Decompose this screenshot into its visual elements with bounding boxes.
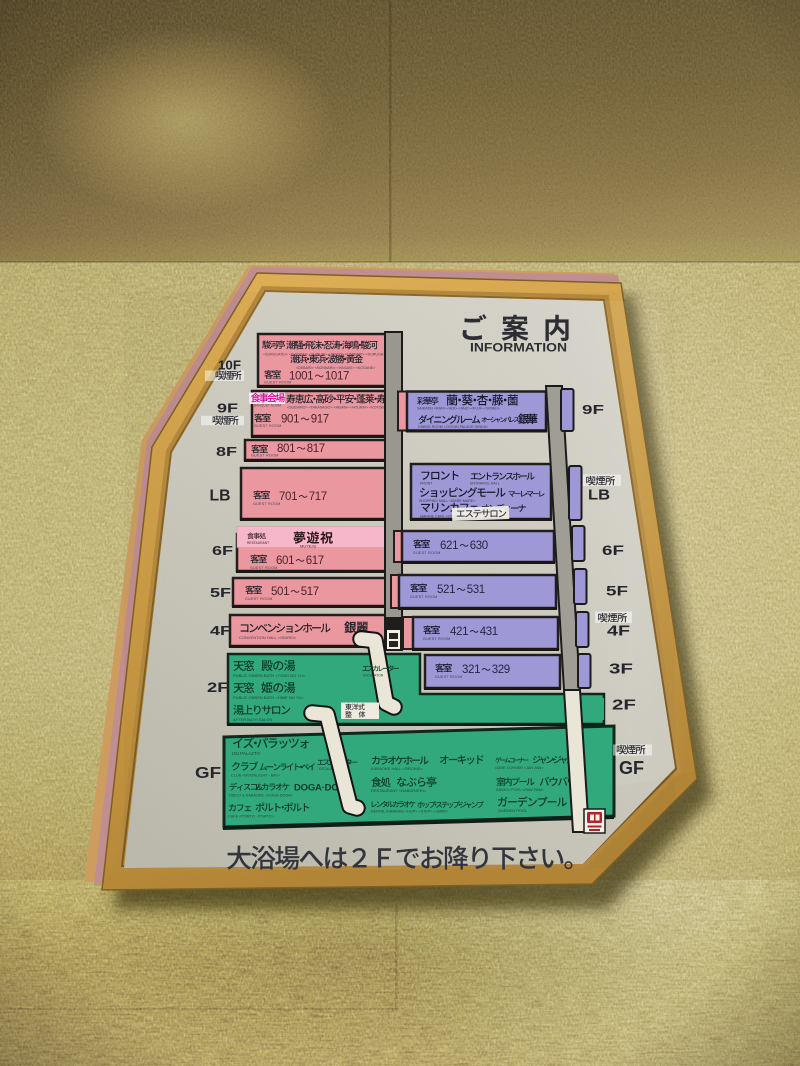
svg-text:421: 421 [450, 626, 468, 638]
svg-text:501: 501 [271, 586, 289, 598]
svg-text:1017: 1017 [325, 371, 349, 383]
svg-text:<SURUGATEI> <SHIOSAI>·<SHIBUKI: <SURUGATEI> <SHIOSAI>·<SHIBUKI>·<NINTO>·… [263, 353, 385, 357]
svg-text:GUEST ROOM: GUEST ROOM [410, 595, 438, 599]
svg-text:AFTER BATH SALON: AFTER BATH SALON [233, 717, 272, 722]
svg-text:PUBLIC ONSEN BATH <HIME NO YU>: PUBLIC ONSEN BATH <HIME NO YU> [233, 695, 304, 700]
svg-text:RESTAURANT <NABURATEI>: RESTAURANT <NABURATEI> [371, 788, 427, 793]
svg-text:IZU PALAZTO: IZU PALAZTO [232, 751, 260, 756]
svg-text:4F: 4F [607, 624, 630, 640]
svg-text:517: 517 [301, 586, 319, 598]
svg-text:GF: GF [619, 757, 644, 778]
svg-text:FRONT: FRONT [420, 482, 433, 486]
svg-text:INDOO< POOL <PAW PAW>: INDOO< POOL <PAW PAW> [496, 788, 544, 792]
svg-text:BANQUET ROOM: BANQUET ROOM [254, 403, 281, 407]
svg-text:GAME CORNER <JAN·JAN>: GAME CORNER <JAN·JAN> [495, 766, 543, 770]
svg-text:601: 601 [276, 555, 294, 567]
svg-text:GUEST ROOM: GUEST ROOM [413, 551, 441, 555]
svg-text:KARAOKE HALL <ORCHID>: KARAOKE HALL <ORCHID> [371, 766, 424, 771]
svg-text:GUEST ROOM: GUEST ROOM [253, 502, 281, 506]
svg-text:LB: LB [210, 488, 231, 505]
svg-text:<DEBARI>·<NONNARI>·<HAGAKI>·<K: <DEBARI>·<NONNARI>·<HAGAKI>·<KOGANE> [296, 366, 375, 370]
svg-text:630: 630 [470, 540, 488, 552]
svg-text:GUEST ROOM: GUEST ROOM [423, 637, 451, 641]
svg-text:GARDEN POOL: GARDEN POOL [498, 808, 528, 813]
svg-text:321: 321 [462, 664, 480, 676]
svg-text:531: 531 [467, 584, 485, 596]
svg-text:917: 917 [311, 414, 329, 426]
svg-text:9F: 9F [582, 402, 604, 417]
svg-text:801: 801 [277, 443, 295, 455]
svg-text:SHOPPING MALL <MARE·MARE>: SHOPPING MALL <MARE·MARE> [419, 499, 475, 503]
svg-text:GUEST ROOM: GUEST ROOM [250, 566, 278, 570]
svg-text:SAIKATEI <RAN>·<AOI>·<ANZ>·<FU: SAIKATEI <RAN>·<AOI>·<ANZ>·<FUJI>·<SOMEI… [417, 407, 500, 411]
svg-text:5F: 5F [606, 583, 629, 599]
svg-text:CAFE <PORTO · PORTO>: CAFE <PORTO · PORTO> [228, 815, 274, 819]
svg-text:DINING ROOM <OCEAN PALACE GING: DINING ROOM <OCEAN PALACE GINGA> [418, 425, 488, 429]
svg-text:701: 701 [279, 491, 297, 503]
svg-text:GUEST ROOM: GUEST ROOM [245, 597, 273, 601]
svg-text:521: 521 [437, 584, 455, 596]
svg-text:4F: 4F [210, 623, 231, 638]
svg-text:GUEST ROOM: GUEST ROOM [251, 454, 279, 458]
svg-text:6F: 6F [602, 542, 625, 558]
svg-text:CONVENTION HALL <GINREI>: CONVENTION HALL <GINREI> [239, 635, 297, 640]
svg-text:5F: 5F [210, 585, 231, 600]
svg-text:6F: 6F [212, 543, 233, 558]
svg-text:621: 621 [440, 540, 458, 552]
svg-text:GUEST ROOM: GUEST ROOM [435, 675, 463, 679]
svg-text:717: 717 [309, 491, 327, 503]
svg-text:3F: 3F [609, 661, 633, 678]
svg-text:CLUB <MOONLIGHT · BAY>: CLUB <MOONLIGHT · BAY> [231, 774, 281, 778]
svg-text:2F: 2F [612, 697, 636, 714]
svg-text:INFORMATION: INFORMATION [470, 343, 567, 355]
svg-text:MUYEJU: MUYEJU [300, 544, 317, 549]
svg-text:GUEST ROOM: GUEST ROOM [254, 424, 282, 428]
svg-text:RENTAL KARAOKE <HOP>·<STEP>·<J: RENTAL KARAOKE <HOP>·<STEP>·<JUMP> [371, 809, 448, 813]
svg-text:8F: 8F [216, 445, 238, 459]
svg-text:329: 329 [492, 664, 510, 676]
svg-text:GF: GF [195, 765, 221, 782]
svg-text:1001: 1001 [289, 371, 313, 383]
svg-text:LB: LB [588, 487, 610, 504]
svg-text:<SUEHIRO> <TAKASAGO>·<HEIAN>·<: <SUEHIRO> <TAKASAGO>·<HEIAN>·<HOURAI>·<K… [287, 405, 392, 409]
svg-text:RESTAURANT: RESTAURANT [247, 541, 269, 545]
svg-text:10F: 10F [218, 358, 241, 373]
svg-text:617: 617 [306, 555, 324, 567]
svg-text:2F: 2F [207, 680, 229, 695]
svg-text:817: 817 [307, 443, 325, 455]
svg-text:901: 901 [281, 414, 299, 426]
svg-text:9F: 9F [217, 402, 239, 416]
svg-text:PUBLIC ONSEN BATH <TONO NO YU>: PUBLIC ONSEN BATH <TONO NO YU> [233, 673, 306, 678]
svg-text:431: 431 [480, 626, 498, 638]
svg-text:ENTRANCE HALL: ENTRANCE HALL [470, 482, 500, 486]
svg-text:DISCO & KARAOKE <DOGA·DOGA>: DISCO & KARAOKE <DOGA·DOGA> [229, 794, 294, 798]
svg-text:ESCALATOR: ESCALATOR [363, 673, 384, 677]
svg-text:GUEST ROOM: GUEST ROOM [264, 381, 292, 385]
